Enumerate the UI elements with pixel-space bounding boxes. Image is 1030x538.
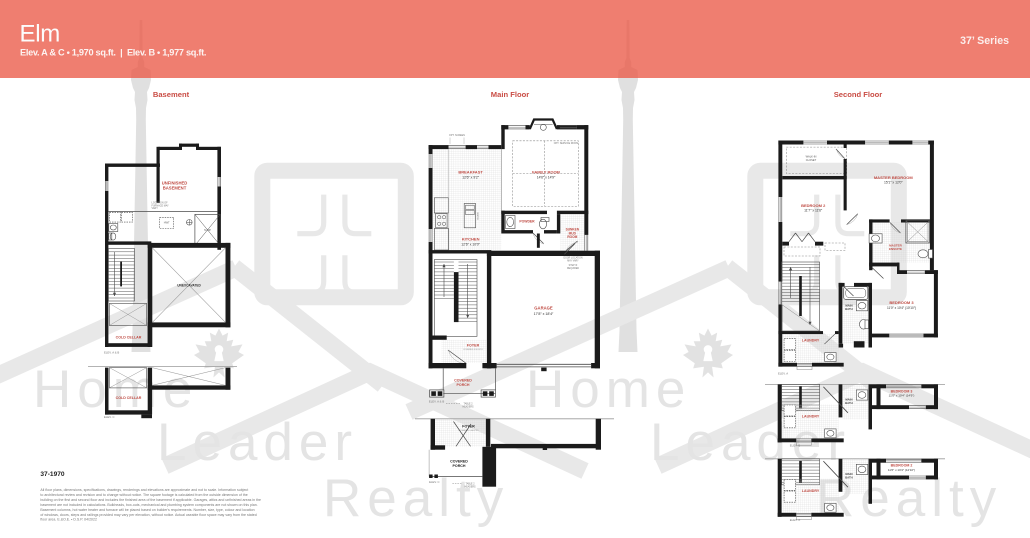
svg-text:HWT: HWT [164,221,170,225]
svg-text:12′6″ x 9′2″: 12′6″ x 9′2″ [462,175,479,179]
svg-text:COVERED 9 BOXTO: COVERED 9 BOXTO [463,349,483,351]
svg-text:11′0″ x 10′4″ (14′9″): 11′0″ x 10′4″ (14′9″) [889,394,915,398]
svg-text:UNEXCAVATED: UNEXCAVATED [177,284,201,288]
svg-text:HEADERS: HEADERS [462,406,474,409]
svg-text:BREAKFAST: BREAKFAST [458,169,483,174]
svg-text:PORCH: PORCH [453,464,466,468]
svg-text:REQUIRED: REQUIRED [567,268,579,270]
svg-text:LAUNDRY: LAUNDRY [802,339,820,343]
svg-text:SUMP: SUMP [204,229,211,232]
svg-text:to architectural review and re: to architectural review and revision and… [40,493,247,497]
svg-text:COLD CELLAR: COLD CELLAR [116,336,142,340]
svg-text:15′1″ x 12′0″: 15′1″ x 12′0″ [884,181,903,185]
svg-text:Elm: Elm [20,21,60,48]
svg-text:TABLE 2: TABLE 2 [465,483,475,486]
svg-text:14′6″ x 14′9″: 14′6″ x 14′9″ [537,175,556,179]
svg-text:OPT. SERVICE ROOM: OPT. SERVICE ROOM [554,142,579,145]
svg-text:COVERED: COVERED [454,379,472,383]
svg-text:Realty: Realty [323,469,509,528]
svg-text:ROOM: ROOM [567,235,577,239]
svg-text:BATH: BATH [845,475,853,479]
svg-text:ELEV. A: ELEV. A [778,371,788,375]
svg-text:MASTER BEDROOM: MASTER BEDROOM [874,175,914,180]
svg-text:STEP IF: STEP IF [569,265,578,267]
svg-text:COVERED 9 BOXTO: COVERED 9 BOXTO [459,430,479,432]
svg-text:of windows, doors, steps and r: of windows, doors, steps and railings pr… [40,513,256,517]
svg-text:LAUNDRY: LAUNDRY [802,414,820,418]
svg-text:WALK-IN: WALK-IN [806,155,817,159]
svg-text:LAUNDRY: LAUNDRY [802,489,820,493]
svg-text:COLD CELLAR: COLD CELLAR [116,396,142,400]
svg-text:Home: Home [526,360,691,419]
svg-text:BASEMENT: BASEMENT [163,186,187,191]
svg-text:BEDROOM 3: BEDROOM 3 [889,300,914,305]
svg-text:ELEV. C: ELEV. C [104,415,114,419]
svg-text:FOYER: FOYER [467,343,480,347]
svg-text:Basement: Basement [153,90,190,99]
svg-text:BEDROOM 2: BEDROOM 2 [801,203,826,208]
svg-text:basement are not included in c: basement are not included in calculation… [40,503,257,507]
svg-text:VARY: VARY [152,207,159,210]
svg-text:11′6″ x 10′4″ (12′10″): 11′6″ x 10′4″ (12′10″) [888,468,915,472]
svg-text:Leader: Leader [157,413,358,472]
svg-text:CLOSET: CLOSET [806,158,817,162]
svg-text:Second Floor: Second Floor [834,90,883,99]
svg-text:PORCH: PORCH [457,383,470,387]
svg-text:ELEV. B: ELEV. B [790,443,800,447]
svg-text:TABLE 2: TABLE 2 [463,403,473,406]
svg-text:HEADERS: HEADERS [464,485,476,488]
svg-text:ELEV. A & B: ELEV. A & B [104,351,119,355]
svg-text:37’ Series: 37’ Series [960,35,1009,47]
svg-text:KITCHEN: KITCHEN [462,236,480,241]
svg-text:GARAGE: GARAGE [534,306,553,311]
svg-text:ENSUITE: ENSUITE [889,247,902,251]
svg-text:ISLAND: ISLAND [476,212,479,220]
svg-text:ELEV. A & B: ELEV. A & B [429,400,444,404]
svg-text:ELEV. C: ELEV. C [429,480,439,484]
svg-text:37-1970: 37-1970 [40,471,65,478]
svg-text:building on the first and seco: building on the first and second floor a… [40,498,261,502]
svg-text:BATH: BATH [845,307,853,311]
svg-text:Main Floor: Main Floor [491,90,529,99]
svg-text:POWDER: POWDER [519,220,535,224]
svg-text:11′0″ x 10′4″ (10′10″): 11′0″ x 10′4″ (10′10″) [887,306,916,310]
svg-text:11′7″ x 11′6″: 11′7″ x 11′6″ [804,209,823,213]
svg-text:Elev. A & C • 1,970 sq.ft. |: Elev. A & C • 1,970 sq.ft. | Elev. B • 1… [20,48,206,58]
svg-text:BATH: BATH [845,401,853,405]
svg-text:MAY VARY: MAY VARY [567,259,579,262]
svg-text:Basement columns, hot water he: Basement columns, hot water heater and f… [40,508,254,512]
svg-text:17′8″ x 18′4″: 17′8″ x 18′4″ [534,312,554,316]
svg-text:floor area. E.&O.E. • D.S.P.: floor area. E.&O.E. • D.S.P. 04/2022 [40,518,97,522]
svg-text:FAMILY ROOM: FAMILY ROOM [532,169,560,174]
svg-text:COVERED: COVERED [450,459,468,463]
svg-text:ELEV. C: ELEV. C [790,518,800,522]
svg-text:DOOR LOCATION: DOOR LOCATION [563,257,582,260]
svg-text:OPT. SCREEN: OPT. SCREEN [449,134,465,137]
svg-text:12′6″ x 10′0″: 12′6″ x 10′0″ [461,242,480,246]
svg-text:All floor plans, dimensions, s: All floor plans, dimensions, specificati… [40,488,248,492]
